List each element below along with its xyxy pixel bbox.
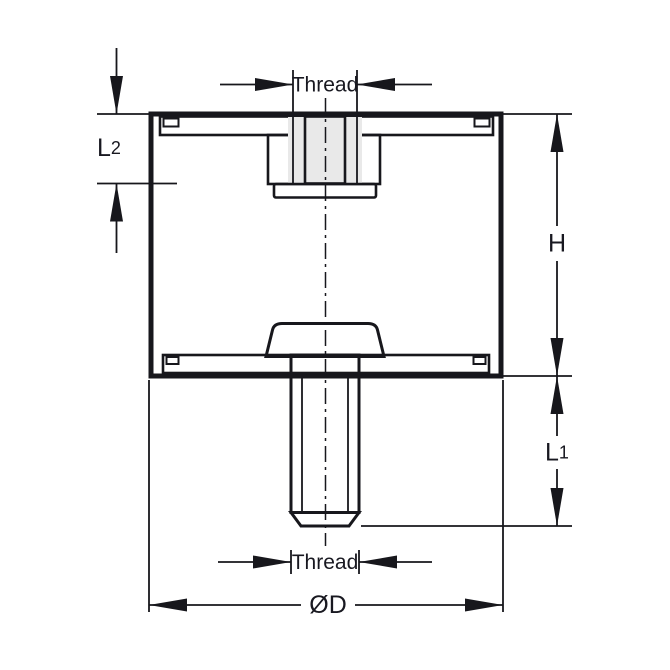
l2-label-main: L [97, 134, 111, 162]
l1-label-sub: 1 [559, 443, 569, 463]
l1-label-main: L [545, 439, 559, 467]
l2-label: L2 [97, 134, 121, 162]
thread-top-label: Thread [292, 74, 359, 97]
technical-drawing: Thread L2 H L1 Thread [0, 0, 670, 670]
l2-label-sub: 2 [111, 138, 121, 158]
l1-label: L1 [545, 439, 569, 467]
thread-bottom-label: Thread [292, 551, 359, 574]
h-label: H [548, 230, 566, 258]
od-label: ØD [309, 591, 347, 619]
